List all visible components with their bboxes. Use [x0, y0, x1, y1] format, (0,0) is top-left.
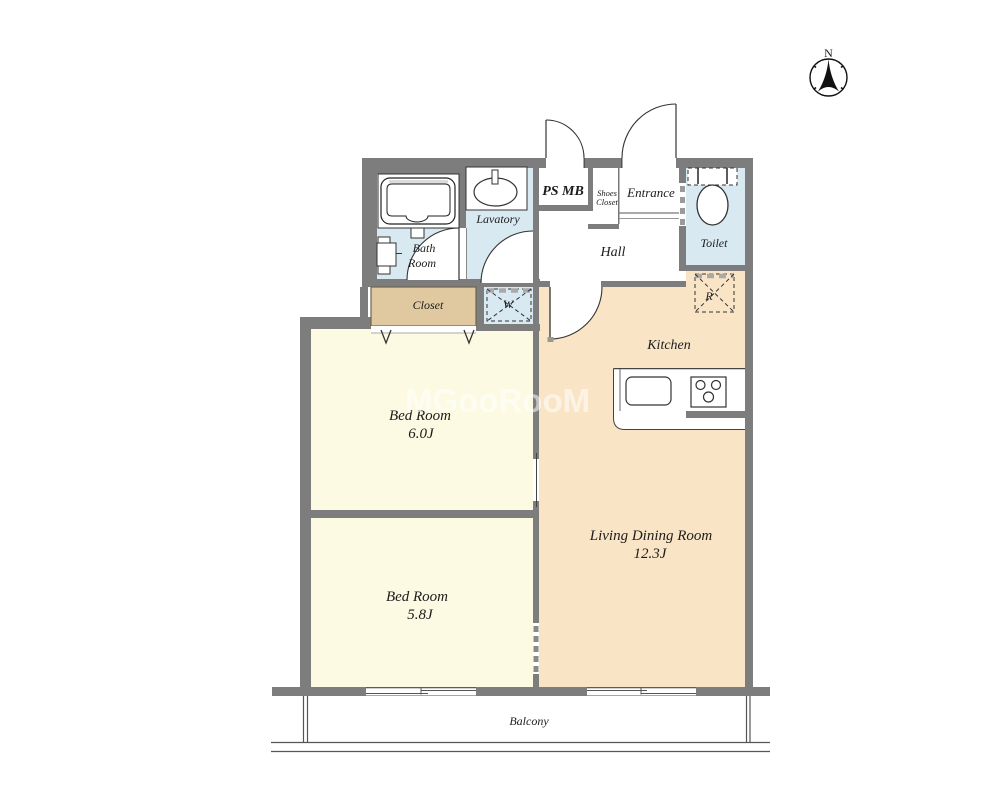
svg-text:Hall: Hall	[600, 245, 626, 260]
svg-text:Closet: Closet	[413, 298, 444, 312]
svg-text:R: R	[704, 289, 713, 303]
svg-text:5.8J: 5.8J	[407, 607, 434, 623]
svg-text:Bath: Bath	[413, 241, 436, 255]
svg-text:Toilet: Toilet	[701, 236, 729, 250]
svg-text:Living Dining Room: Living Dining Room	[589, 528, 713, 544]
svg-text:N: N	[824, 46, 833, 60]
svg-text:Kitchen: Kitchen	[646, 338, 691, 353]
svg-text:PS MB: PS MB	[542, 184, 584, 199]
svg-text:Entrance: Entrance	[626, 185, 675, 200]
svg-text:Bed Room: Bed Room	[386, 589, 448, 605]
svg-text:Room: Room	[407, 256, 436, 270]
svg-text:6.0J: 6.0J	[408, 426, 435, 442]
svg-text:MGooRooM: MGooRooM	[405, 382, 590, 419]
svg-text:Lavatory: Lavatory	[475, 212, 520, 226]
svg-text:Balcony: Balcony	[509, 714, 549, 728]
svg-text:12.3J: 12.3J	[634, 546, 668, 562]
svg-text:Closet: Closet	[596, 197, 618, 207]
svg-text:W: W	[503, 297, 514, 311]
